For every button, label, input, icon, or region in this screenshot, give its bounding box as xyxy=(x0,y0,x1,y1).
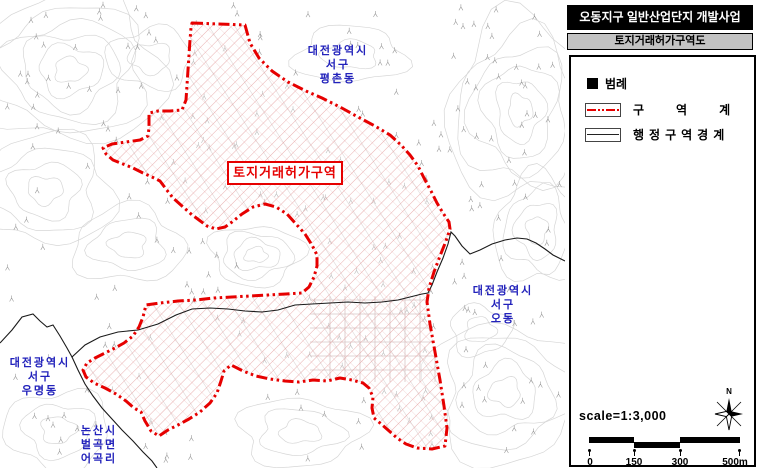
zone-boundary-line-icon xyxy=(585,103,621,117)
zone-label-box: 토지거래허가구역 xyxy=(227,161,343,185)
region-label-odong: 대전광역시 서구 오동 xyxy=(473,284,534,326)
scale-tick-500m: 500m xyxy=(722,457,748,468)
admin-boundary-line-icon xyxy=(585,128,621,142)
panel-subtitle: 토지거래허가구역도 xyxy=(567,33,753,50)
region-label-eogok: 논산시 벌곡면 어곡리 xyxy=(81,424,117,466)
topographic-map xyxy=(0,0,565,468)
scale-tick-150: 150 xyxy=(626,457,643,468)
screenshot-root: 토지거래허가구역 대전광역시 서구 평촌동 대전광역시 서구 오동 대전광역시 … xyxy=(0,0,760,468)
legend-title: 범례 xyxy=(605,75,627,92)
legend-box: 범례 구역계 행정구역경계 N xyxy=(569,55,756,467)
scale-text: scale=1:3,000 xyxy=(579,409,666,423)
legend-item-zone-boundary: 구역계 xyxy=(585,101,737,118)
legend-title-row: 범례 xyxy=(587,75,627,92)
legend-item-label: 행정구역경계 xyxy=(633,126,737,143)
compass-n-label: N xyxy=(726,387,732,396)
scale-tick-300: 300 xyxy=(672,457,689,468)
legend-item-label: 구역계 xyxy=(633,101,737,118)
region-label-umyeong: 대전광역시 서구 우명동 xyxy=(10,356,71,398)
legend-item-admin-boundary: 행정구역경계 xyxy=(585,126,737,143)
legend-bullet-icon xyxy=(587,78,598,89)
compass-north-icon: N xyxy=(712,387,746,433)
map-area: 토지거래허가구역 대전광역시 서구 평촌동 대전광역시 서구 오동 대전광역시 … xyxy=(0,0,565,468)
scale-tick-0: 0 xyxy=(587,457,593,468)
scale-bar: 0 150 300 500m xyxy=(589,437,740,467)
panel-title: 오동지구 일반산업단지 개발사업 xyxy=(567,5,753,30)
region-label-pyeongchon: 대전광역시 서구 평촌동 xyxy=(308,44,369,86)
info-panel: 오동지구 일반산업단지 개발사업 토지거래허가구역도 범례 구역계 행정구역경계… xyxy=(565,0,760,468)
